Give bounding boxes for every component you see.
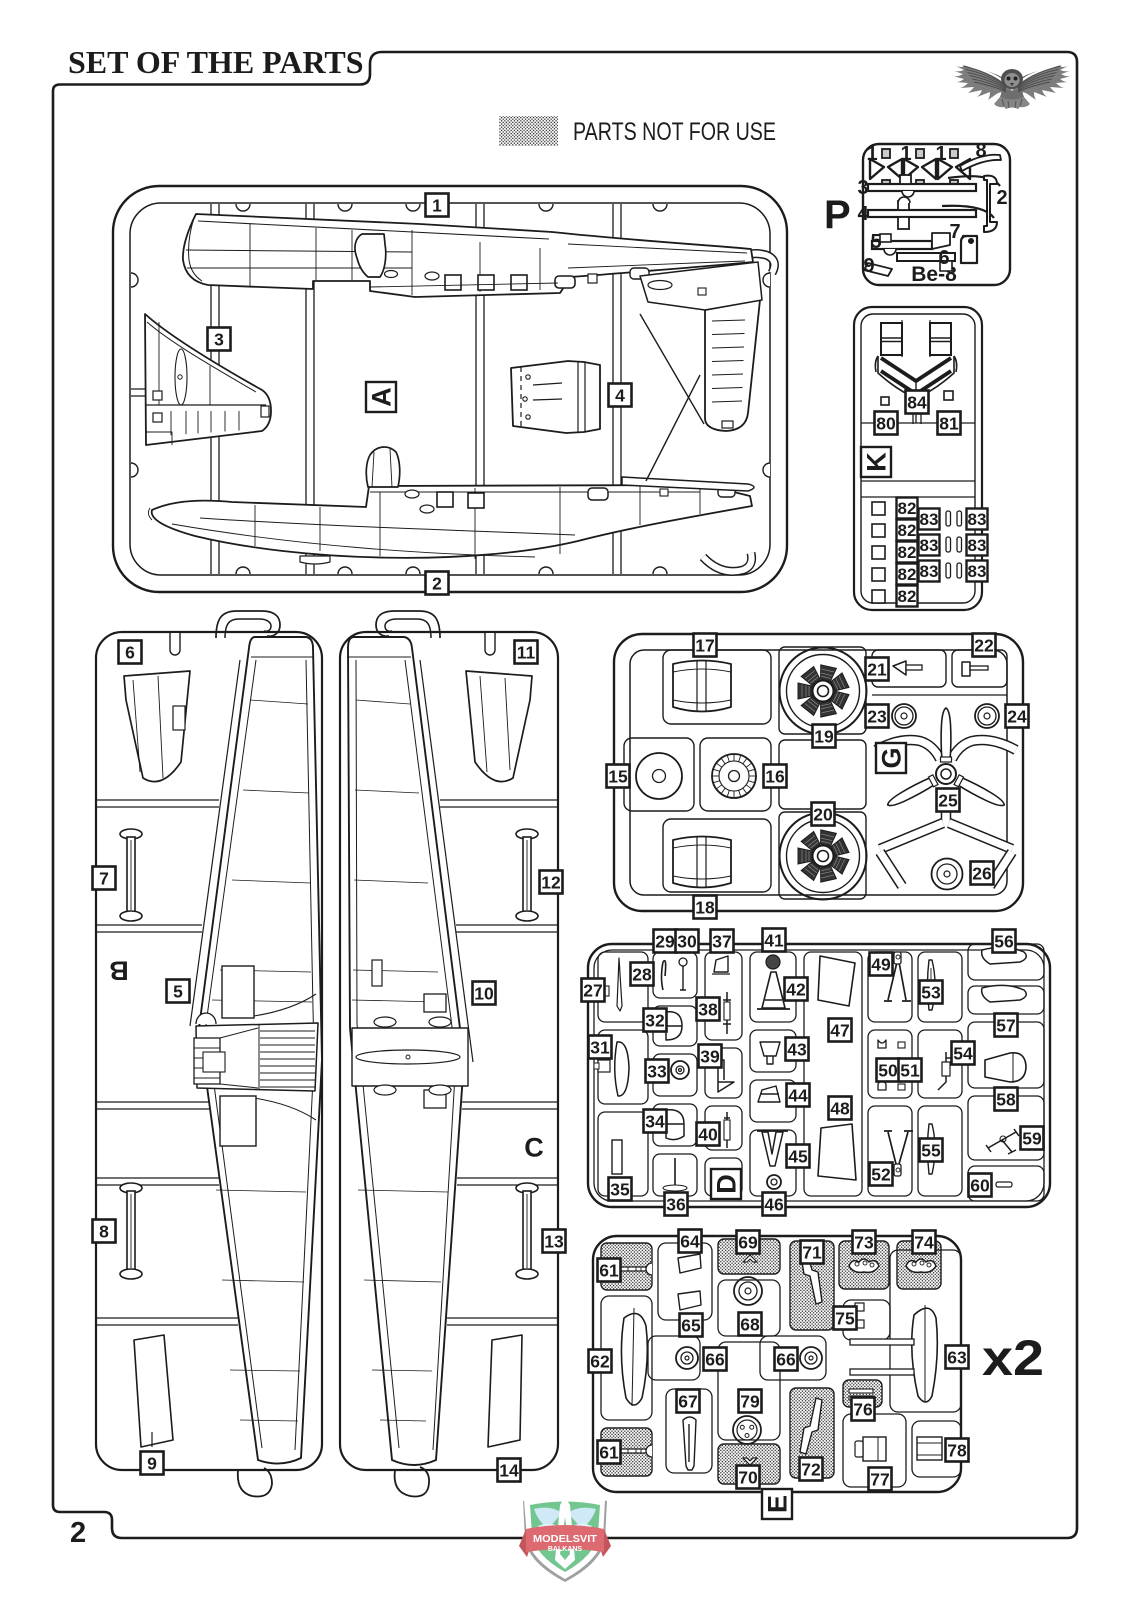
svg-text:65: 65 xyxy=(681,1315,701,1335)
svg-text:36: 36 xyxy=(666,1194,686,1214)
svg-text:54: 54 xyxy=(953,1043,973,1063)
svg-text:3: 3 xyxy=(857,177,868,199)
svg-text:62: 62 xyxy=(590,1351,610,1371)
svg-text:61: 61 xyxy=(599,1442,619,1462)
svg-text:51: 51 xyxy=(900,1060,920,1080)
svg-text:79: 79 xyxy=(740,1391,760,1411)
svg-text:4: 4 xyxy=(857,203,869,225)
svg-text:82: 82 xyxy=(898,543,917,562)
svg-text:30: 30 xyxy=(677,931,697,951)
svg-text:28: 28 xyxy=(632,964,652,984)
svg-text:83: 83 xyxy=(920,510,939,529)
svg-text:5: 5 xyxy=(870,231,881,253)
svg-text:15: 15 xyxy=(608,766,628,786)
svg-text:81: 81 xyxy=(939,413,959,433)
svg-text:17: 17 xyxy=(695,635,714,655)
svg-text:1: 1 xyxy=(935,143,946,165)
svg-text:80: 80 xyxy=(876,413,896,433)
svg-text:59: 59 xyxy=(1022,1128,1042,1148)
svg-text:3: 3 xyxy=(214,329,224,349)
svg-text:82: 82 xyxy=(898,521,917,540)
svg-text:2: 2 xyxy=(432,573,442,593)
svg-text:61: 61 xyxy=(599,1260,619,1280)
svg-text:PARTS NOT FOR USE: PARTS NOT FOR USE xyxy=(573,118,776,146)
svg-text:E: E xyxy=(763,1495,793,1513)
svg-text:70: 70 xyxy=(738,1467,758,1487)
svg-text:33: 33 xyxy=(647,1061,667,1081)
svg-text:76: 76 xyxy=(853,1399,873,1419)
svg-text:41: 41 xyxy=(764,930,784,950)
svg-text:82: 82 xyxy=(898,499,917,518)
svg-text:60: 60 xyxy=(970,1175,990,1195)
svg-text:7: 7 xyxy=(99,868,109,888)
svg-text:8: 8 xyxy=(99,1221,109,1241)
svg-text:34: 34 xyxy=(645,1111,665,1131)
svg-text:66: 66 xyxy=(776,1349,796,1369)
svg-text:68: 68 xyxy=(740,1314,760,1334)
svg-text:24: 24 xyxy=(1007,706,1027,726)
svg-text:69: 69 xyxy=(738,1232,758,1252)
svg-text:72: 72 xyxy=(801,1459,821,1479)
svg-text:46: 46 xyxy=(764,1194,784,1214)
svg-text:12: 12 xyxy=(541,872,561,892)
svg-text:84: 84 xyxy=(907,392,927,412)
svg-text:P: P xyxy=(824,193,851,237)
svg-text:K: K xyxy=(862,452,892,472)
svg-text:A: A xyxy=(367,387,397,407)
svg-text:74: 74 xyxy=(914,1232,934,1252)
svg-text:57: 57 xyxy=(996,1015,1015,1035)
svg-text:42: 42 xyxy=(786,979,806,999)
svg-text:20: 20 xyxy=(813,804,833,824)
svg-text:47: 47 xyxy=(830,1020,849,1040)
svg-text:31: 31 xyxy=(590,1037,610,1057)
svg-text:63: 63 xyxy=(947,1347,967,1367)
svg-text:56: 56 xyxy=(994,931,1014,951)
svg-text:71: 71 xyxy=(802,1242,822,1262)
svg-text:83: 83 xyxy=(920,562,939,581)
svg-text:B: B xyxy=(109,955,129,985)
svg-text:43: 43 xyxy=(787,1039,807,1059)
svg-text:77: 77 xyxy=(870,1469,889,1489)
svg-text:38: 38 xyxy=(698,999,718,1019)
svg-text:11: 11 xyxy=(517,642,536,662)
svg-text:25: 25 xyxy=(938,790,958,810)
svg-text:9: 9 xyxy=(863,255,874,277)
svg-text:G: G xyxy=(877,747,907,768)
svg-text:6: 6 xyxy=(938,247,949,269)
svg-text:9: 9 xyxy=(147,1453,157,1473)
svg-text:27: 27 xyxy=(583,980,602,1000)
svg-text:58: 58 xyxy=(996,1089,1016,1109)
svg-text:50: 50 xyxy=(878,1060,898,1080)
svg-text:1: 1 xyxy=(866,143,877,165)
svg-text:40: 40 xyxy=(698,1124,718,1144)
svg-text:8: 8 xyxy=(975,140,986,162)
svg-text:64: 64 xyxy=(680,1231,700,1251)
svg-text:16: 16 xyxy=(765,766,785,786)
svg-text:10: 10 xyxy=(474,983,494,1003)
svg-text:75: 75 xyxy=(835,1308,855,1328)
svg-text:D: D xyxy=(712,1174,742,1194)
svg-text:MODELSVIT: MODELSVIT xyxy=(533,1534,597,1545)
svg-text:26: 26 xyxy=(972,863,992,883)
svg-text:48: 48 xyxy=(830,1098,850,1118)
svg-text:2: 2 xyxy=(996,187,1007,209)
svg-text:66: 66 xyxy=(705,1349,725,1369)
svg-text:5: 5 xyxy=(173,981,183,1001)
svg-text:BALKANS: BALKANS xyxy=(548,1546,583,1553)
svg-text:37: 37 xyxy=(712,931,731,951)
svg-text:23: 23 xyxy=(867,706,887,726)
svg-text:1: 1 xyxy=(432,195,442,215)
svg-text:14: 14 xyxy=(499,1460,519,1480)
svg-text:49: 49 xyxy=(871,954,891,974)
svg-text:22: 22 xyxy=(974,635,994,655)
svg-text:44: 44 xyxy=(788,1085,808,1105)
svg-text:73: 73 xyxy=(854,1232,874,1252)
svg-text:45: 45 xyxy=(788,1146,808,1166)
svg-text:7: 7 xyxy=(949,221,960,243)
svg-text:39: 39 xyxy=(700,1046,720,1066)
svg-text:1: 1 xyxy=(900,143,911,165)
svg-text:83: 83 xyxy=(920,536,939,555)
svg-text:2: 2 xyxy=(70,1517,86,1549)
svg-text:18: 18 xyxy=(695,897,715,917)
svg-text:4: 4 xyxy=(615,385,625,405)
svg-text:78: 78 xyxy=(947,1440,967,1460)
svg-text:83: 83 xyxy=(968,536,987,555)
svg-text:21: 21 xyxy=(867,659,887,679)
svg-text:52: 52 xyxy=(871,1164,891,1184)
svg-text:83: 83 xyxy=(968,562,987,581)
svg-text:13: 13 xyxy=(544,1231,564,1251)
svg-text:53: 53 xyxy=(921,982,941,1002)
svg-text:29: 29 xyxy=(655,931,675,951)
svg-text:32: 32 xyxy=(645,1010,665,1030)
svg-text:83: 83 xyxy=(968,510,987,529)
svg-text:6: 6 xyxy=(125,642,135,662)
svg-text:x2: x2 xyxy=(982,1330,1044,1386)
svg-text:82: 82 xyxy=(898,587,917,606)
svg-text:SET OF THE PARTS: SET OF THE PARTS xyxy=(68,44,364,80)
svg-text:19: 19 xyxy=(814,726,834,746)
svg-text:82: 82 xyxy=(898,565,917,584)
svg-text:67: 67 xyxy=(678,1391,697,1411)
svg-text:35: 35 xyxy=(610,1179,630,1199)
svg-text:C: C xyxy=(524,1133,544,1163)
svg-text:55: 55 xyxy=(921,1140,941,1160)
